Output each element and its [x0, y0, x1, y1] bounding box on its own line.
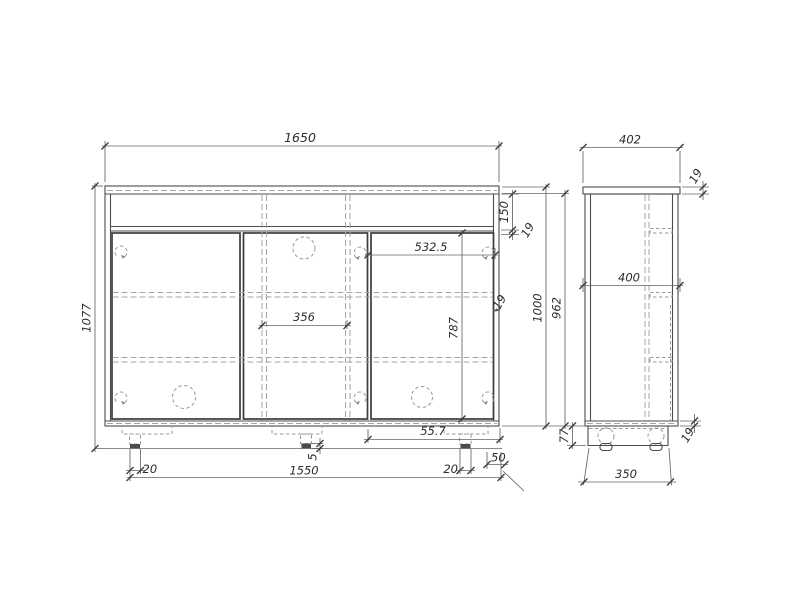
leg-foot	[130, 444, 140, 449]
dim-carcass-height: 1000	[531, 293, 545, 322]
dim-panel-depth: 400	[618, 271, 640, 285]
dim-top-depth: 402	[619, 133, 641, 147]
dim-partition-spacing: 356	[293, 310, 315, 324]
dim-drawer-front-height: 150	[497, 201, 511, 223]
paper-background	[0, 0, 800, 600]
dim-door-height: 787	[447, 316, 461, 339]
dim-right-door-width: 532.5	[415, 240, 448, 254]
dim-right-leg-width: 20	[443, 462, 458, 476]
cabinet-drawing: 1650 1077 150 19 532.5 356 787	[0, 0, 800, 600]
dim-base-height: 77	[557, 428, 571, 443]
dim-side-panel-height: 962	[550, 297, 564, 319]
dim-left-leg-width: 20	[143, 462, 158, 476]
leg-foot	[302, 444, 312, 449]
dim-overall-height: 1077	[80, 303, 94, 333]
dim-foot-height: 5	[306, 453, 320, 460]
technical-drawing-canvas: 1650 1077 150 19 532.5 356 787	[0, 0, 800, 600]
dim-base-depth: 350	[615, 467, 637, 481]
dim-right-leg-inset: 50	[491, 451, 506, 465]
dim-overall-width: 1650	[284, 130, 316, 145]
dim-bottom-offset: 55.7	[420, 424, 446, 438]
dim-leg-span: 1550	[289, 464, 318, 478]
leg-foot	[461, 444, 471, 449]
